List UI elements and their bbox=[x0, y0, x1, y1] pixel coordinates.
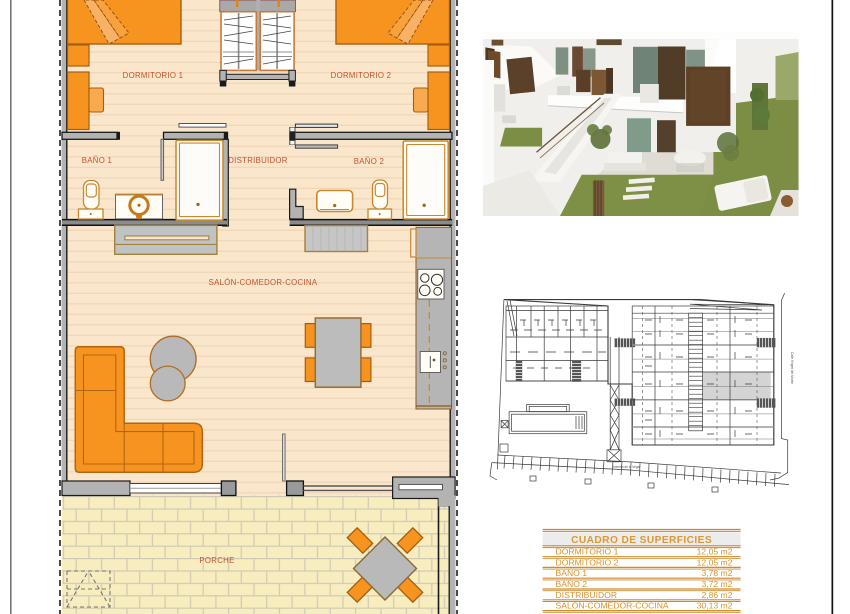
svg-text:2,86 m2: 2,86 m2 bbox=[701, 590, 732, 600]
svg-text:DISTRIBUIDOR: DISTRIBUIDOR bbox=[556, 590, 618, 600]
svg-text:3,78 m2: 3,78 m2 bbox=[701, 568, 732, 578]
svg-text:DISTRIBUIDOR: DISTRIBUIDOR bbox=[228, 156, 288, 165]
svg-text:SALÓN-COMEDOR-COCINA: SALÓN-COMEDOR-COCINA bbox=[556, 601, 669, 611]
svg-text:12,05 m2: 12,05 m2 bbox=[697, 547, 733, 557]
svg-text:DORMITORIO 2: DORMITORIO 2 bbox=[556, 557, 619, 567]
svg-text:CUADRO DE SUPERFICIES: CUADRO DE SUPERFICIES bbox=[571, 535, 712, 546]
svg-text:BAÑO 1: BAÑO 1 bbox=[82, 156, 112, 165]
svg-text:DORMITORIO 1: DORMITORIO 1 bbox=[556, 547, 619, 557]
svg-text:BAÑO 2: BAÑO 2 bbox=[354, 157, 384, 166]
svg-text:Calle Virgen del Monte: Calle Virgen del Monte bbox=[790, 352, 794, 384]
svg-text:DORMITORIO 1: DORMITORIO 1 bbox=[123, 71, 184, 80]
svg-text:12,05 m2: 12,05 m2 bbox=[697, 557, 733, 567]
svg-text:BAÑO 1: BAÑO 1 bbox=[556, 568, 588, 578]
svg-text:BAÑO 2: BAÑO 2 bbox=[556, 579, 588, 589]
svg-text:3,72 m2: 3,72 m2 bbox=[701, 579, 732, 589]
svg-text:SALÓN-COMEDOR-COCINA: SALÓN-COMEDOR-COCINA bbox=[209, 278, 318, 287]
svg-text:DORMITORIO 2: DORMITORIO 2 bbox=[331, 71, 392, 80]
svg-text:PORCHE: PORCHE bbox=[199, 556, 234, 565]
svg-text:30,13 m2: 30,13 m2 bbox=[697, 601, 733, 611]
svg-text:Avenida de la Vega: Avenida de la Vega bbox=[612, 465, 640, 469]
